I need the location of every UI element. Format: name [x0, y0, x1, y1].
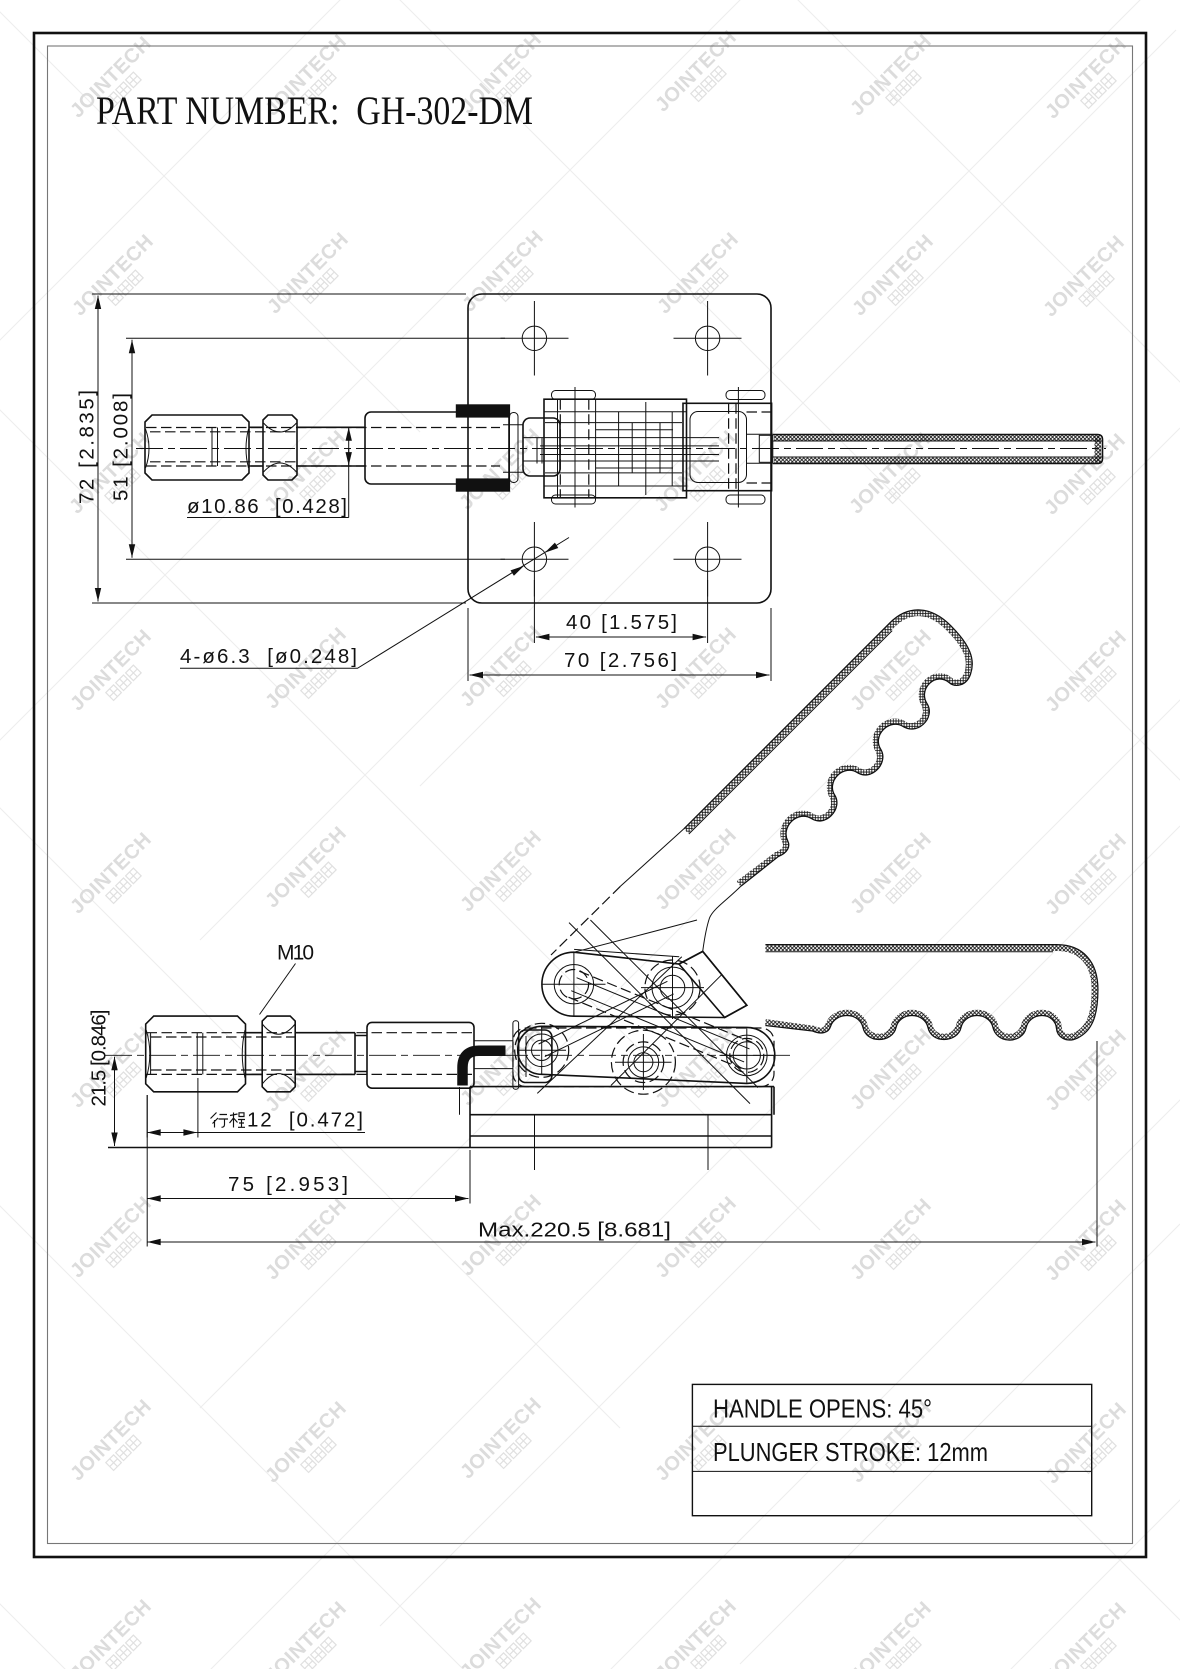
svg-text:21.5 [0.846]: 21.5 [0.846] — [88, 1010, 111, 1107]
svg-text:PART NUMBER: GH-302-DM: PART NUMBER: GH-302-DM — [96, 88, 533, 133]
svg-text:Max.220.5 [8.681]: Max.220.5 [8.681] — [478, 1219, 671, 1242]
svg-text:51 [2.008]: 51 [2.008] — [110, 393, 133, 501]
svg-text:HANDLE OPENS: 45°: HANDLE OPENS: 45° — [713, 1394, 932, 1424]
svg-text:M10: M10 — [277, 941, 314, 964]
svg-text:12 [0.472]: 12 [0.472] — [247, 1108, 363, 1131]
svg-text:PLUNGER STROKE: 12mm: PLUNGER STROKE: 12mm — [713, 1437, 988, 1467]
svg-text:ø10.86 [0.428]: ø10.86 [0.428] — [187, 495, 347, 518]
svg-text:4-ø6.3 [ø0.248]: 4-ø6.3 [ø0.248] — [180, 645, 357, 668]
